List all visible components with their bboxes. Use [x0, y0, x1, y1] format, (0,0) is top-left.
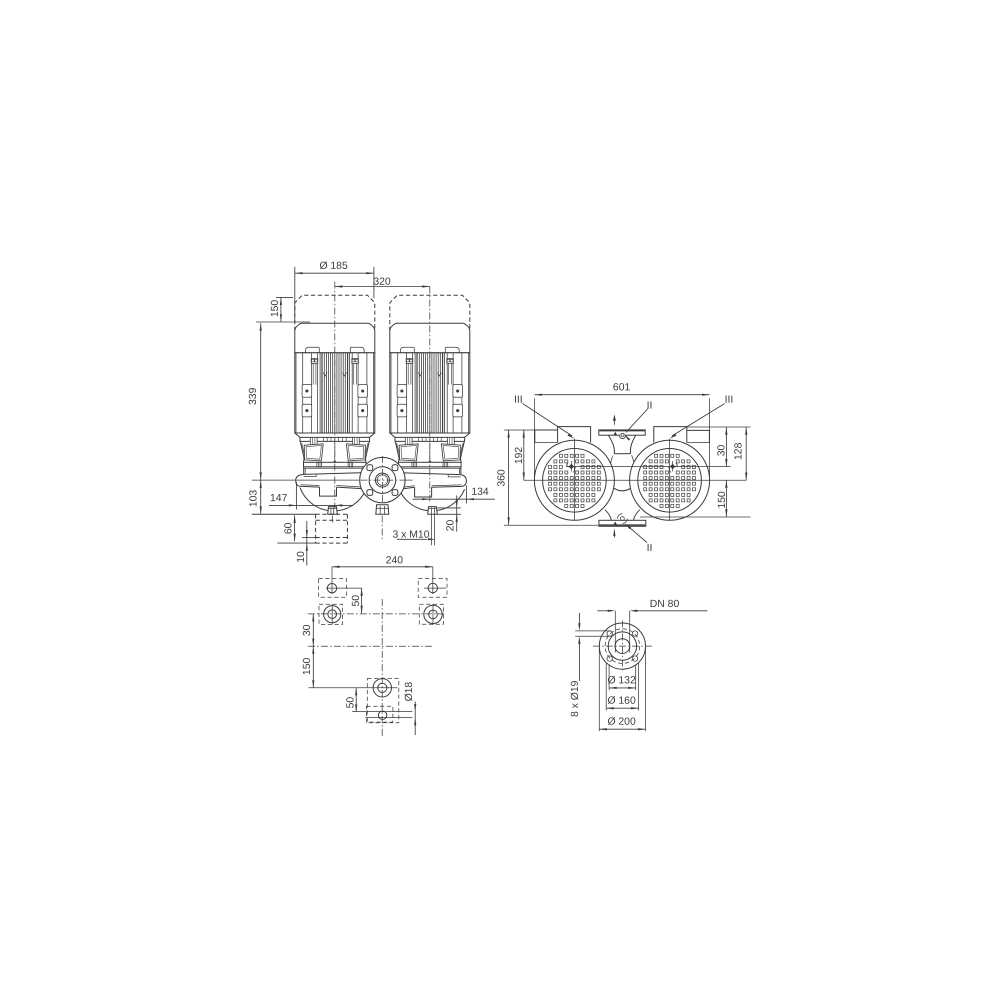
svg-text:128: 128	[733, 442, 744, 460]
svg-text:III: III	[725, 395, 734, 406]
svg-text:150: 150	[302, 658, 313, 676]
svg-text:50: 50	[351, 595, 362, 607]
svg-text:320: 320	[373, 277, 391, 288]
svg-text:10: 10	[296, 551, 307, 563]
svg-text:192: 192	[514, 447, 525, 465]
svg-text:Ø 185: Ø 185	[319, 261, 348, 272]
svg-text:Ø18: Ø18	[404, 682, 415, 702]
svg-text:II: II	[647, 401, 653, 412]
svg-text:III: III	[514, 395, 523, 406]
svg-text:30: 30	[717, 445, 728, 457]
svg-text:134: 134	[471, 487, 489, 498]
svg-text:20: 20	[445, 520, 456, 532]
svg-text:103: 103	[248, 490, 259, 508]
svg-text:240: 240	[386, 555, 404, 566]
svg-text:360: 360	[497, 469, 508, 487]
svg-text:II: II	[647, 543, 653, 554]
svg-text:339: 339	[248, 387, 259, 405]
svg-text:601: 601	[613, 382, 631, 393]
svg-text:Ø 132: Ø 132	[607, 675, 636, 686]
svg-text:150: 150	[270, 300, 281, 318]
svg-text:8 x Ø19: 8 x Ø19	[570, 680, 581, 717]
svg-text:60: 60	[284, 522, 295, 534]
svg-text:50: 50	[346, 697, 357, 709]
svg-text:Ø 200: Ø 200	[607, 717, 636, 728]
svg-text:Ø 160: Ø 160	[607, 696, 636, 707]
svg-text:150: 150	[717, 491, 728, 509]
svg-text:3 x M10: 3 x M10	[393, 530, 430, 541]
svg-text:147: 147	[270, 493, 288, 504]
svg-text:30: 30	[302, 624, 313, 636]
svg-text:DN 80: DN 80	[650, 599, 680, 610]
